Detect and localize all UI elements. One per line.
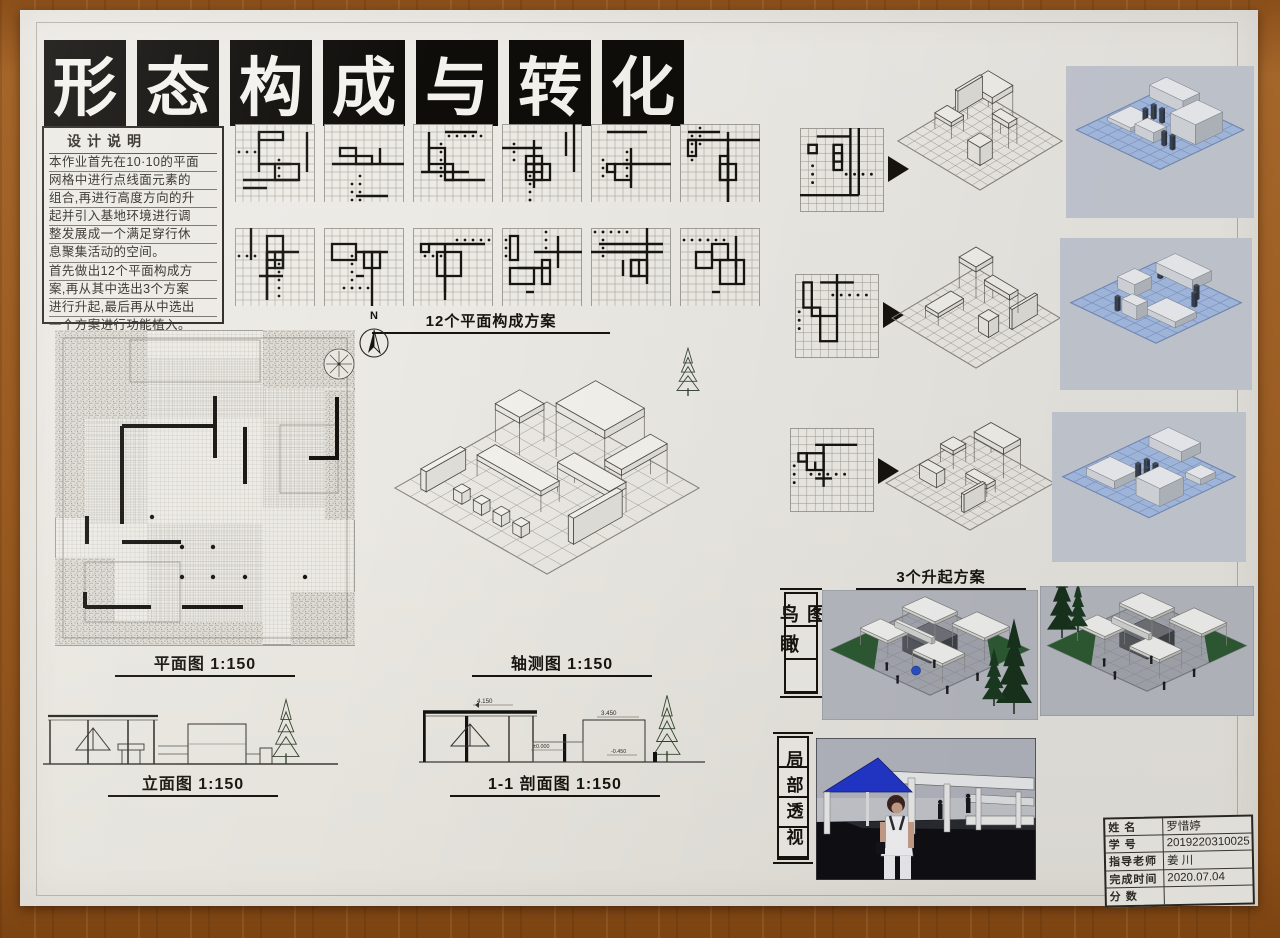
plan-study-cell (591, 228, 671, 306)
design-notes-line: 整发展成一个满足穿行休 (49, 226, 217, 244)
design-notes-box: 设计说明 本作业首先在10·10的平面 网格中进行点线面元素的 组合,再进行高度… (42, 126, 224, 324)
design-notes-line: 进行升起,最后再从中选出 (49, 299, 217, 317)
design-notes-line: 首先做出12个平面构成方 (49, 263, 217, 281)
title-block-label: 完成时间 (1106, 870, 1164, 888)
photo-of-presentation-board: { "poster": { "title": "形态构成与转化", "title… (0, 0, 1280, 938)
title-char-tile: 成 (323, 40, 405, 126)
lift-scheme-3-plan (790, 428, 874, 512)
title-block-table: 姓 名 罗惜婷 学 号 2019220310025 指导老师 姜 川 完成时间 … (1103, 814, 1255, 907)
lift-scheme-3-render (1052, 412, 1246, 562)
design-notes-line: 网格中进行点线面元素的 (49, 172, 217, 190)
title-block-value: 2019220310025 (1163, 834, 1251, 853)
title-block-value: 姜 川 (1164, 851, 1252, 870)
plan-studies-label: 12个平面构成方案 (372, 310, 610, 334)
elevation-drawing (38, 690, 393, 772)
design-notes-line: 起并引入基地环境进行调 (49, 208, 217, 226)
dim-roof: 4.150 (477, 698, 493, 705)
poster-title: 形 态 构 成 与 转 化 (44, 40, 684, 126)
lift-schemes-label: 3个升起方案 (856, 566, 1026, 590)
dim-ground: ±0.000 (533, 744, 549, 750)
design-notes-heading: 设计说明 (49, 130, 217, 154)
title-char-tile: 转 (509, 40, 591, 126)
perspective-label: 局部透视 (777, 736, 809, 860)
title-block-value: 2020.07.04 (1164, 868, 1252, 887)
svg-text:N: N (370, 310, 378, 322)
axon-label: 轴测图 1:150 (472, 650, 652, 677)
title-char-tile: 与 (416, 40, 498, 126)
plan-label: 平面图 1:150 (115, 650, 295, 677)
plan-study-cell (235, 124, 315, 202)
section-drawing: 4.1503.450±0.000-0.450 (415, 688, 710, 772)
title-char-tile: 形 (44, 40, 126, 126)
title-block-label: 指导老师 (1106, 853, 1164, 871)
title-block-label: 分 数 (1107, 887, 1165, 905)
plan-study-cell (413, 124, 493, 202)
lift-scheme-2-axon (890, 238, 1062, 414)
plan-study-cell (591, 124, 671, 202)
section-label: 1-1 剖面图 1:150 (450, 770, 660, 797)
title-block-value: 罗惜婷 (1163, 816, 1251, 835)
floor-plan-drawing (55, 330, 355, 648)
title-block-value (1165, 885, 1253, 904)
lift-scheme-3-axon (884, 408, 1056, 574)
plan-study-cell (502, 124, 582, 202)
dim-sunken: -0.450 (611, 749, 626, 755)
plan-study-cell (680, 124, 760, 202)
dim-box: 3.450 (601, 710, 617, 717)
design-notes-line: 息聚集活动的空间。 (49, 244, 217, 262)
plan-study-cell (502, 228, 582, 306)
poster-paper: 形 态 构 成 与 转 化 设计说明 本作业首先在10·10的平面 网格中进行点… (20, 10, 1258, 906)
plan-study-cell (680, 228, 760, 306)
title-char-tile: 构 (230, 40, 312, 126)
plan-study-cell (235, 228, 315, 306)
birdseye-render-2 (1040, 586, 1254, 716)
birdseye-render-1 (822, 590, 1038, 720)
title-char-tile: 态 (137, 40, 219, 126)
title-block-label: 学 号 (1105, 836, 1163, 854)
design-notes-line: 组合,再进行高度方向的升 (49, 190, 217, 208)
design-notes-line: 本作业首先在10·10的平面 (49, 154, 217, 172)
lift-scheme-2-render (1060, 238, 1252, 390)
title-char-tile: 化 (602, 40, 684, 126)
lift-scheme-2-plan (795, 274, 879, 358)
plan-study-cell (413, 228, 493, 306)
lift-scheme-1-axon (896, 58, 1064, 248)
axonometric-drawing (372, 332, 722, 648)
birdseye-label: 鸟瞰图 (784, 592, 818, 694)
plan-study-cell (324, 228, 404, 306)
lift-scheme-1-render (1066, 66, 1254, 218)
design-notes-line: 案,再从其中选出3个方案 (49, 281, 217, 299)
elevation-label: 立面图 1:150 (108, 770, 278, 797)
plan-study-cell (324, 124, 404, 202)
lift-scheme-1-plan (800, 128, 884, 212)
title-block-label: 姓 名 (1105, 818, 1163, 836)
perspective-render (816, 738, 1036, 880)
